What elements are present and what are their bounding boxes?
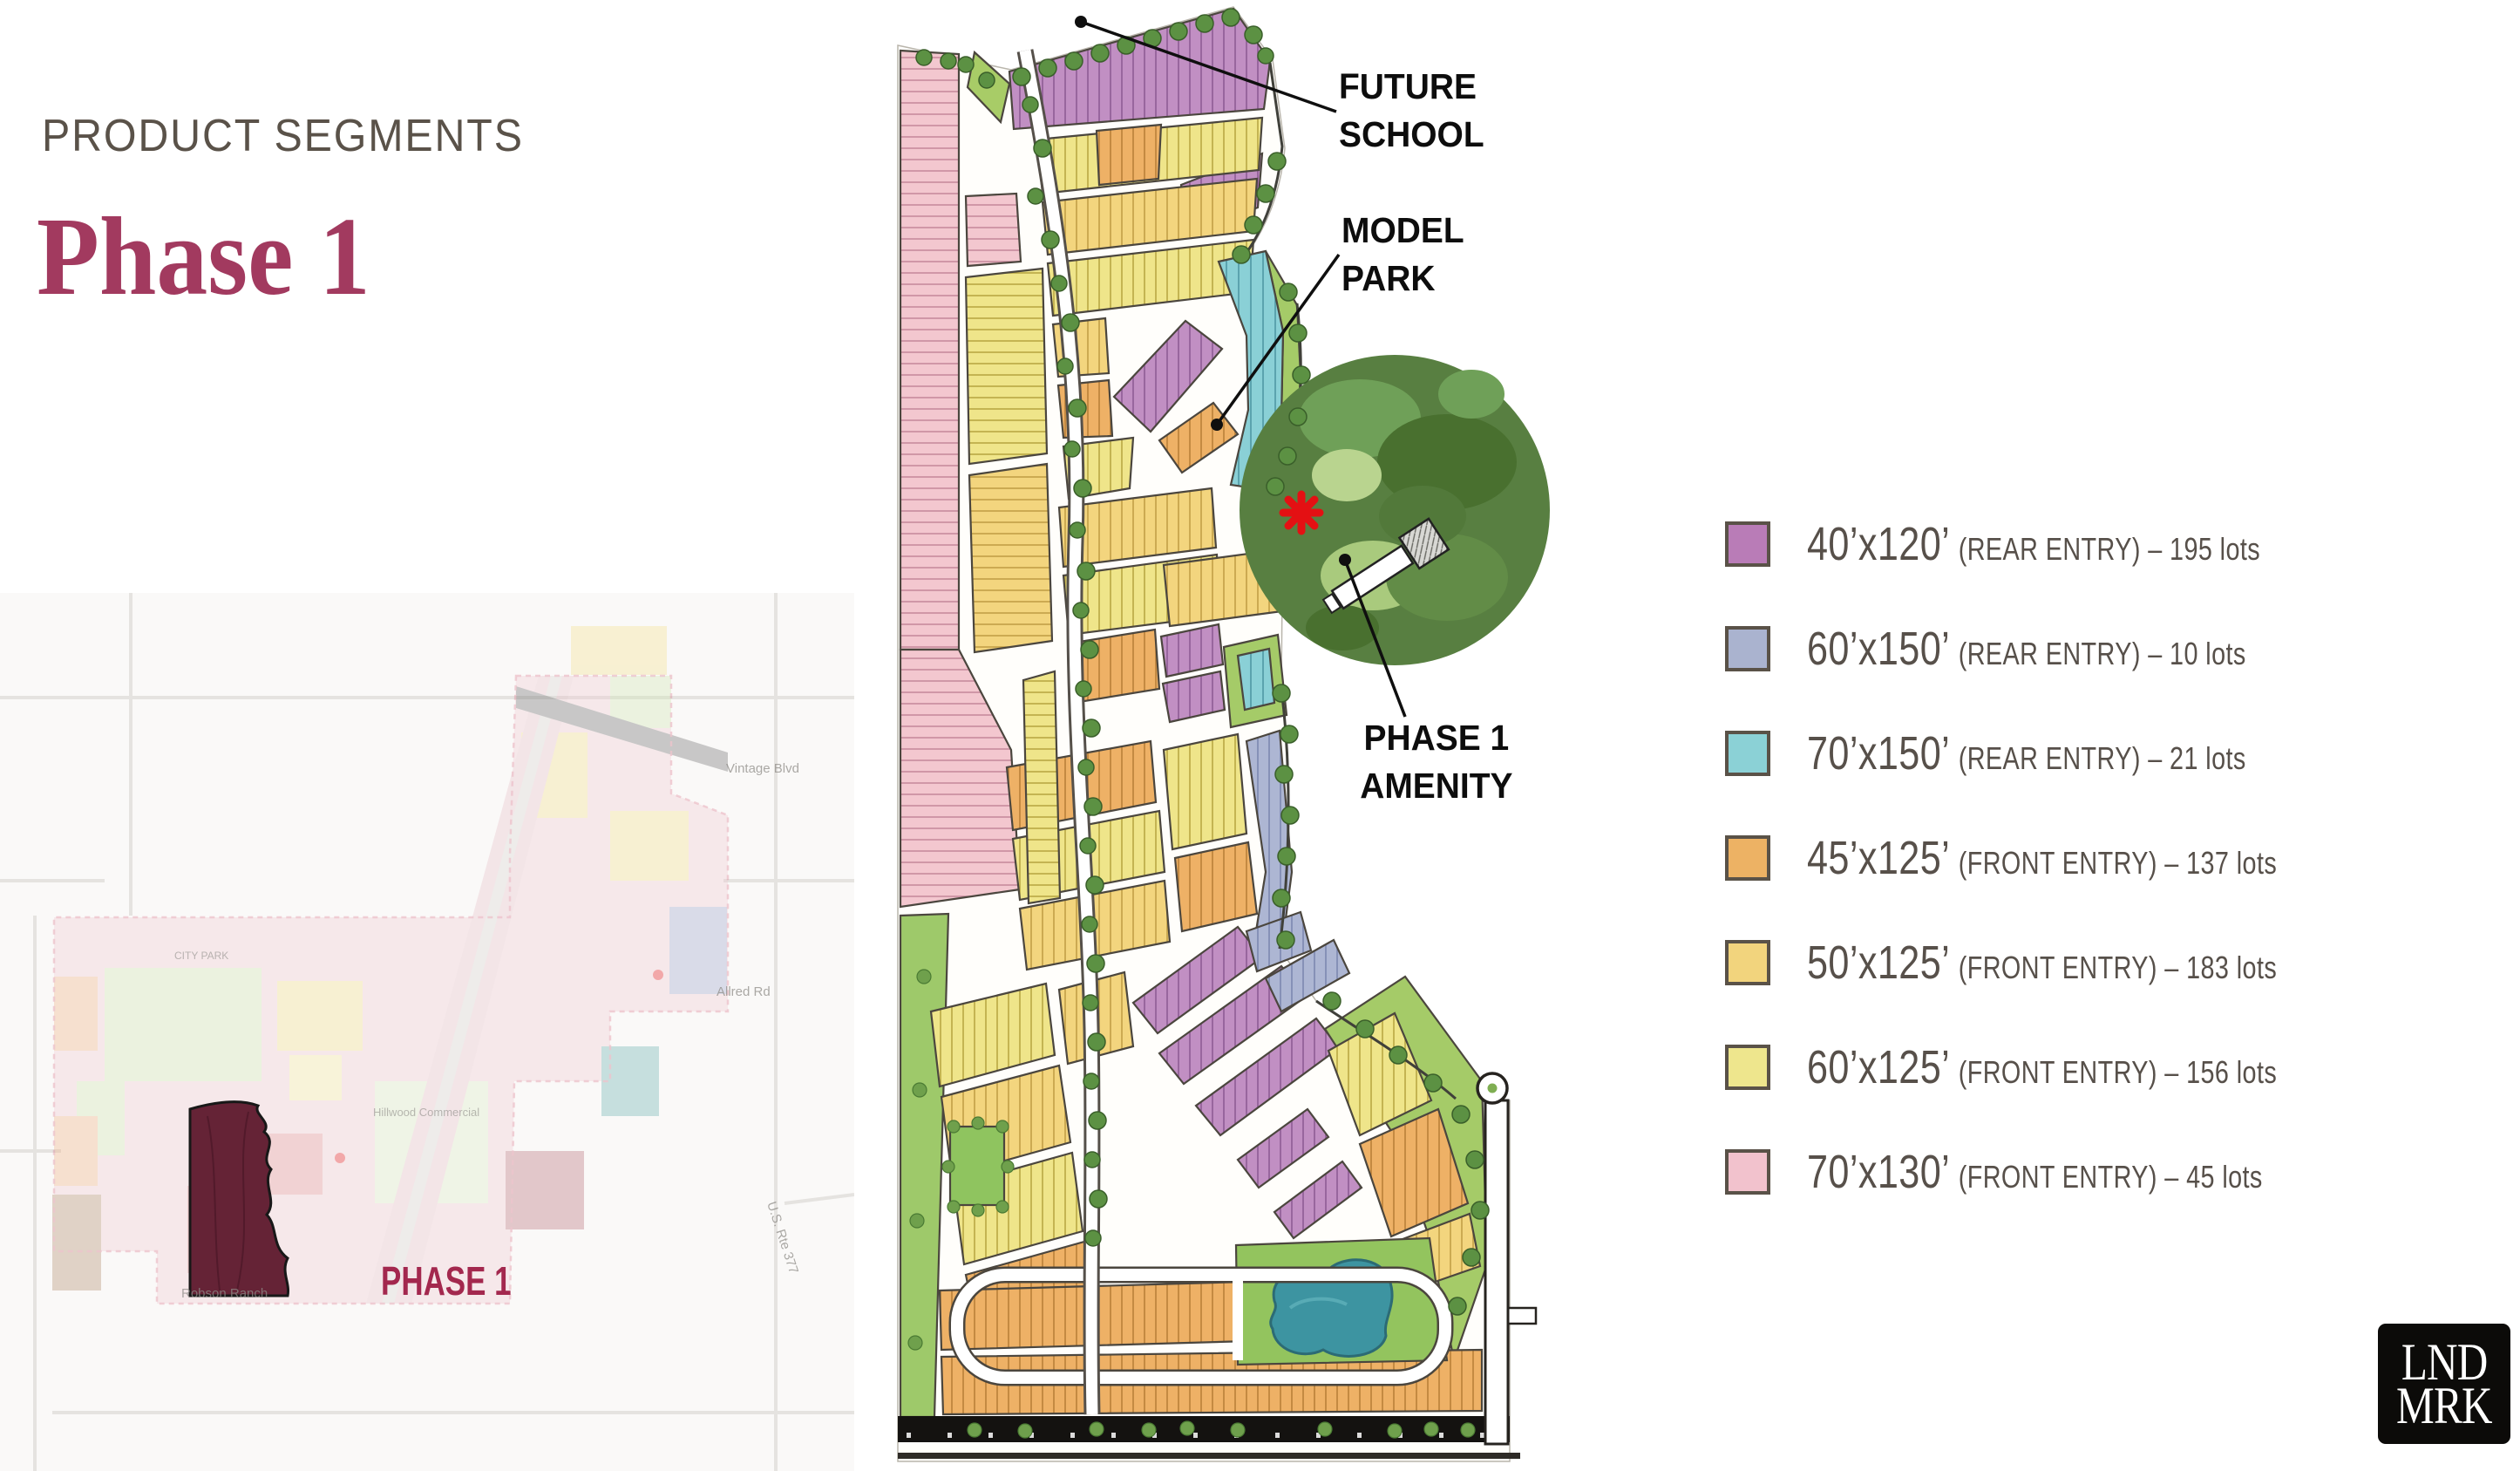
legend-detail: (FRONT ENTRY) – 45 lots <box>1959 1159 2263 1195</box>
legend-detail: (REAR ENTRY) – 10 lots <box>1959 636 2246 672</box>
callout-line: SCHOOL <box>1339 111 1484 159</box>
leader-dot-amenity <box>1339 554 1351 566</box>
legend-size: 50’x125’ <box>1807 936 1950 990</box>
logo-line2: MRK <box>2396 1384 2492 1427</box>
legend-swatch-60x150 <box>1725 626 1770 671</box>
legend-item-40x120: 40’x120’(REAR ENTRY) – 195 lots <box>1725 498 2335 590</box>
legend-item-70x150: 70’x150’(REAR ENTRY) – 21 lots <box>1725 707 2335 800</box>
context-label-robson: Robson Ranch <box>181 1286 268 1301</box>
legend-item-60x150: 60’x150’(REAR ENTRY) – 10 lots <box>1725 603 2335 695</box>
legend-swatch-50x125 <box>1725 940 1770 985</box>
context-map: Vintage Blvd Allred Rd U.S. Rte 377 Robs… <box>0 593 854 1471</box>
legend-detail: (FRONT ENTRY) – 156 lots <box>1959 1054 2277 1091</box>
legend-size: 70’x150’ <box>1807 726 1950 780</box>
callout-line: AMENITY <box>1351 762 1522 810</box>
legend-detail: (REAR ENTRY) – 195 lots <box>1959 531 2260 568</box>
callout-line: PHASE 1 <box>1351 714 1522 762</box>
leader-dot-school <box>1075 16 1087 28</box>
legend-size: 70’x130’ <box>1807 1145 1950 1199</box>
context-label-citypark: CITY PARK <box>174 950 228 962</box>
page-eyebrow: PRODUCT SEGMENTS <box>42 110 524 162</box>
leader-dot-modelpark <box>1211 419 1223 431</box>
legend-swatch-60x125 <box>1725 1045 1770 1090</box>
context-label-vintage: Vintage Blvd <box>726 761 799 776</box>
legend-swatch-40x120 <box>1725 521 1770 567</box>
legend-item-70x130: 70’x130’(FRONT ENTRY) – 45 lots <box>1725 1126 2335 1218</box>
legend-size: 40’x120’ <box>1807 517 1950 571</box>
callout-future-school: FUTURE SCHOOL <box>1339 63 1484 159</box>
legend-detail: (FRONT ENTRY) – 183 lots <box>1959 950 2277 986</box>
legend-item-60x125: 60’x125’(FRONT ENTRY) – 156 lots <box>1725 1021 2335 1113</box>
context-phase1-label: PHASE 1 <box>381 1257 512 1304</box>
callout-line: PARK <box>1342 255 1464 303</box>
legend-swatch-45x125 <box>1725 835 1770 881</box>
legend-item-50x125: 50’x125’(FRONT ENTRY) – 183 lots <box>1725 916 2335 1009</box>
callout-line: FUTURE <box>1339 63 1484 111</box>
amenity-forest <box>1240 355 1550 665</box>
legend-size: 60’x125’ <box>1807 1040 1950 1094</box>
legend-item-45x125: 45’x125’(FRONT ENTRY) – 137 lots <box>1725 812 2335 904</box>
legend-swatch-70x150 <box>1725 731 1770 776</box>
legend-size: 60’x150’ <box>1807 622 1950 676</box>
legend-detail: (REAR ENTRY) – 21 lots <box>1959 740 2246 777</box>
legend-swatch-70x130 <box>1725 1149 1770 1195</box>
amenity-star-marker <box>1283 494 1320 531</box>
context-label-hillwood: Hillwood Commercial <box>373 1106 479 1119</box>
context-label-allred: Allred Rd <box>717 984 771 999</box>
callout-line: MODEL <box>1342 207 1464 255</box>
east-road <box>1477 1073 1536 1444</box>
callout-phase1-amenity: PHASE 1 AMENITY <box>1351 714 1522 810</box>
callout-model-park: MODEL PARK <box>1342 207 1464 303</box>
page-title: Phase 1 <box>37 195 370 318</box>
legend-size: 45’x125’ <box>1807 831 1950 885</box>
lndmrk-logo: LND MRK <box>2378 1324 2510 1444</box>
legend-detail: (FRONT ENTRY) – 137 lots <box>1959 845 2277 882</box>
